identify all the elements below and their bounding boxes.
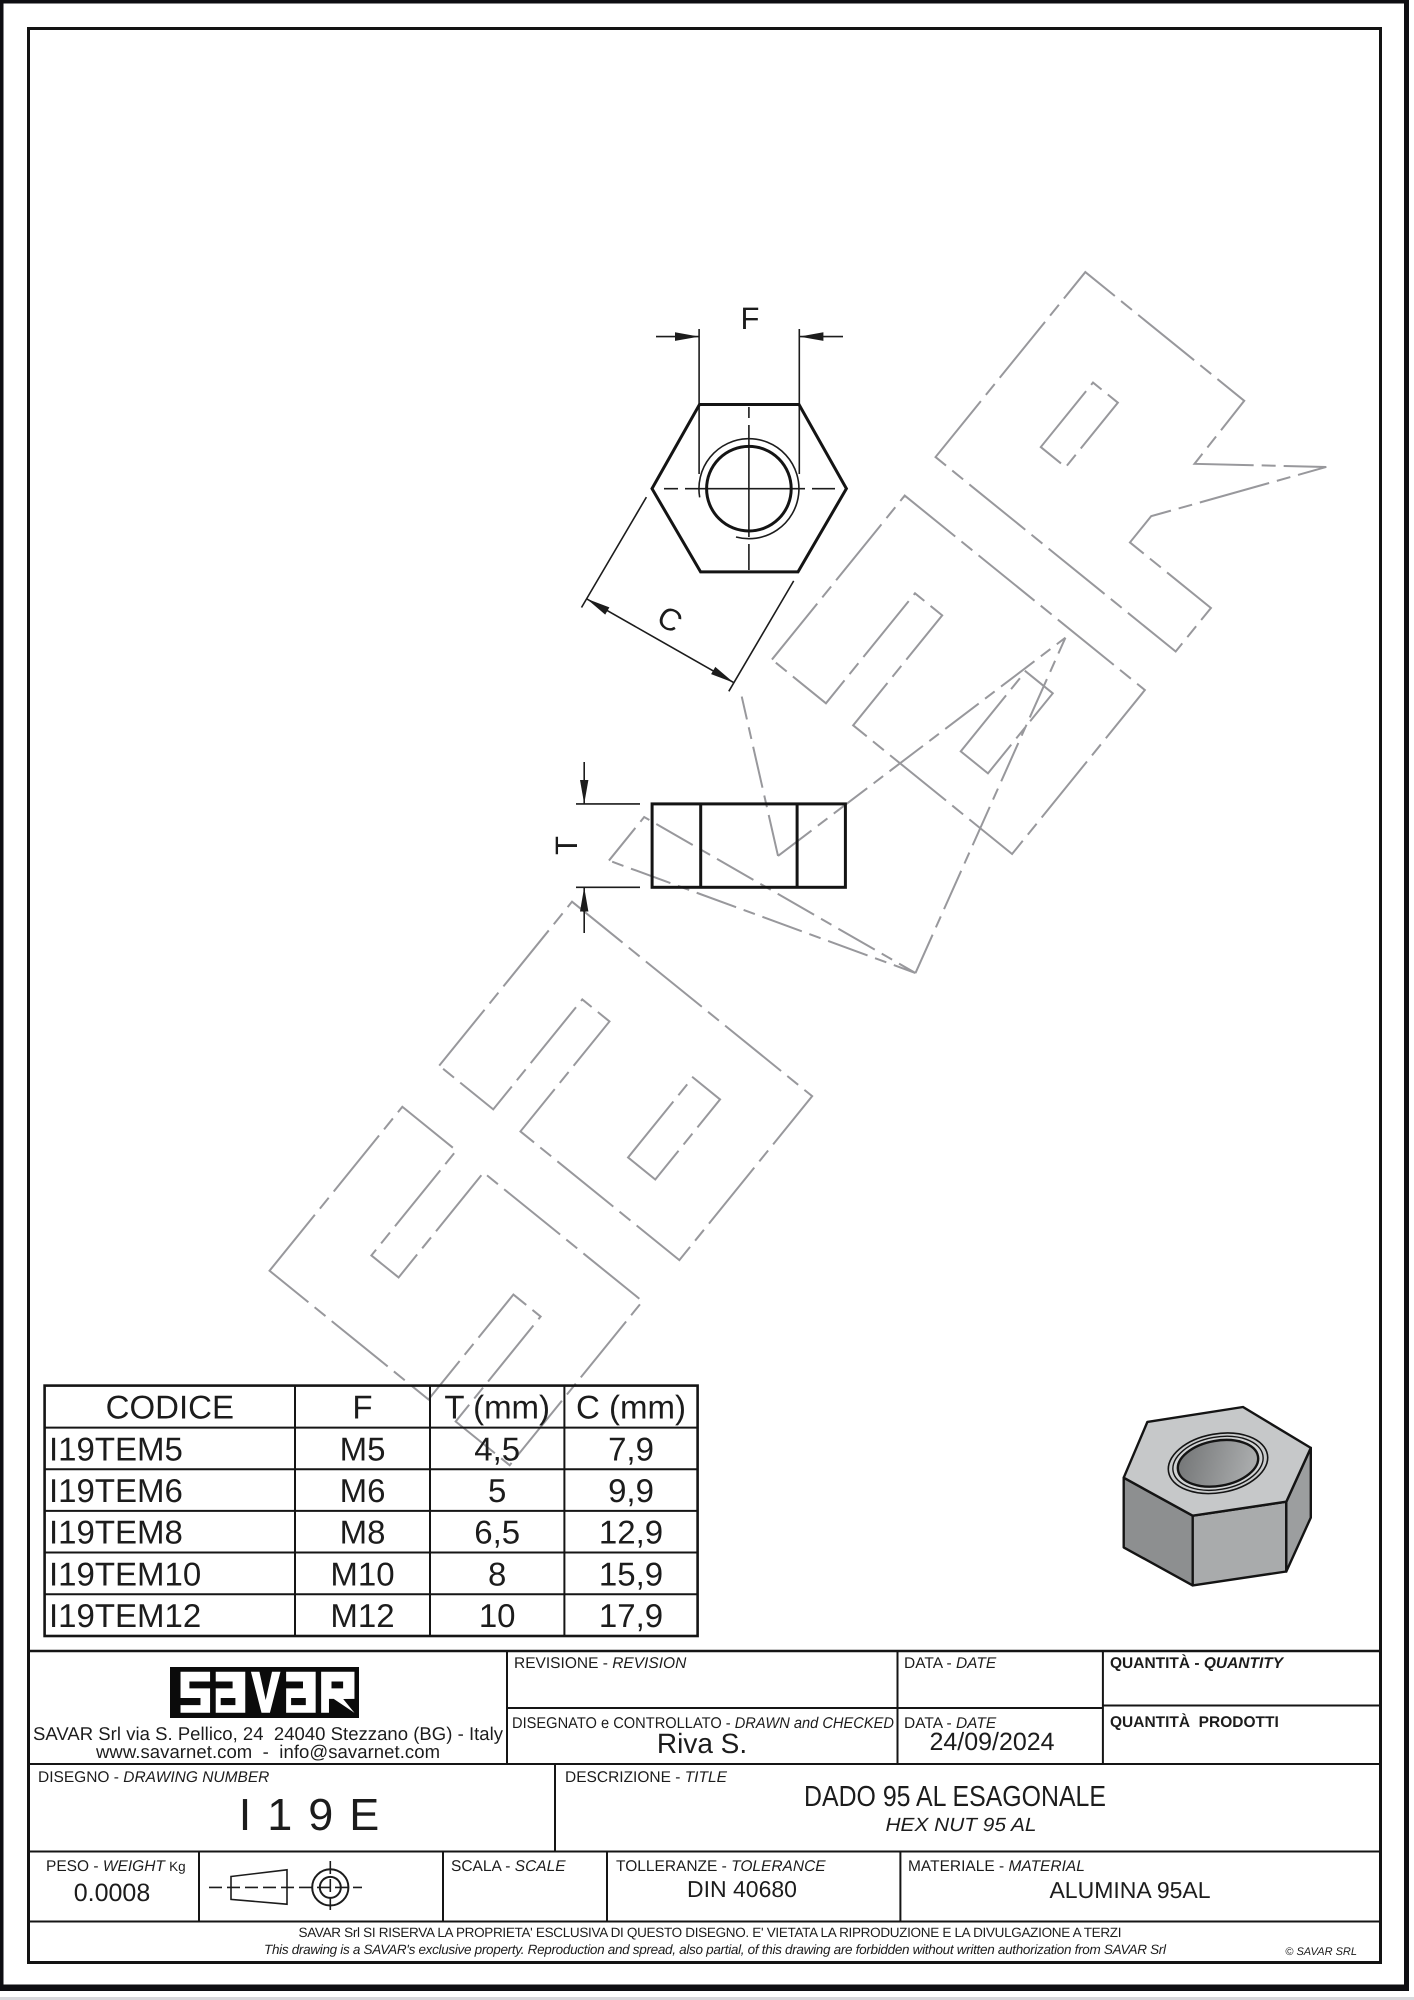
svg-text:M6: M6 xyxy=(340,1472,386,1509)
svg-text:15,9: 15,9 xyxy=(599,1555,663,1592)
svg-text:MATERIALE - MATERIAL: MATERIALE - MATERIAL xyxy=(908,1858,1085,1875)
svg-text:M10: M10 xyxy=(330,1555,394,1592)
svg-text:I19TEM6: I19TEM6 xyxy=(49,1472,183,1509)
svg-text:REVISIONE - REVISION: REVISIONE - REVISION xyxy=(514,1655,687,1672)
svg-text:I19TEM5: I19TEM5 xyxy=(49,1430,183,1467)
svg-text:9,9: 9,9 xyxy=(608,1472,654,1509)
svg-text:QUANTITÀ PRODOTTI: QUANTITÀ PRODOTTI xyxy=(1110,1713,1279,1731)
svg-text:8: 8 xyxy=(488,1555,506,1592)
svg-text:M5: M5 xyxy=(340,1430,386,1467)
svg-text:SAVAR Srl SI RISERVA LA PROPRI: SAVAR Srl SI RISERVA LA PROPRIETA' ESCLU… xyxy=(299,1925,1122,1940)
svg-text:C (mm): C (mm) xyxy=(576,1389,686,1426)
svg-text:I19TEM12: I19TEM12 xyxy=(49,1597,201,1634)
svg-text:TOLLERANZE - TOLERANCE: TOLLERANZE - TOLERANCE xyxy=(616,1858,826,1875)
svg-text:5: 5 xyxy=(488,1472,506,1509)
svg-text:17,9: 17,9 xyxy=(599,1597,663,1634)
svg-text:10: 10 xyxy=(479,1597,516,1634)
svg-text:I19TEM10: I19TEM10 xyxy=(49,1555,201,1592)
svg-text:DATA - DATE: DATA - DATE xyxy=(904,1655,997,1672)
svg-text:0.0008: 0.0008 xyxy=(74,1879,150,1907)
svg-text:DADO 95 AL ESAGONALE: DADO 95 AL ESAGONALE xyxy=(804,1781,1106,1813)
svg-text:SCALA - SCALE: SCALA - SCALE xyxy=(451,1858,566,1875)
svg-text:QUANTITÀ - QUANTITY: QUANTITÀ - QUANTITY xyxy=(1110,1654,1285,1672)
svg-text:F: F xyxy=(741,301,760,336)
svg-text:T (mm): T (mm) xyxy=(444,1389,550,1426)
svg-text:I19TEM8: I19TEM8 xyxy=(49,1514,183,1551)
svg-text:6,5: 6,5 xyxy=(474,1514,520,1551)
svg-text:12,9: 12,9 xyxy=(599,1514,663,1551)
svg-text:F: F xyxy=(352,1389,372,1426)
svg-text:CODICE: CODICE xyxy=(106,1389,234,1426)
svg-text:Riva S.: Riva S. xyxy=(657,1728,747,1759)
svg-text:I19E: I19E xyxy=(239,1789,396,1840)
svg-text:4,5: 4,5 xyxy=(474,1430,520,1467)
svg-text:www.savarnet.com - info@sava: www.savarnet.com - info@savarnet.com xyxy=(95,1741,440,1762)
svg-text:24/09/2024: 24/09/2024 xyxy=(929,1728,1054,1756)
svg-text:T: T xyxy=(549,836,584,855)
svg-text:PESO - WEIGHT Kg: PESO - WEIGHT Kg xyxy=(46,1858,186,1875)
svg-text:© SAVAR SRL: © SAVAR SRL xyxy=(1285,1946,1357,1958)
svg-text:M8: M8 xyxy=(340,1514,386,1551)
svg-text:This drawing is a SAVAR's excl: This drawing is a SAVAR's exclusive prop… xyxy=(264,1942,1167,1957)
svg-text:7,9: 7,9 xyxy=(608,1430,654,1467)
svg-text:ALUMINA 95AL: ALUMINA 95AL xyxy=(1049,1877,1210,1903)
svg-text:DIN 40680: DIN 40680 xyxy=(687,1876,797,1902)
svg-text:M12: M12 xyxy=(330,1597,394,1634)
svg-text:HEX NUT 95 AL: HEX NUT 95 AL xyxy=(886,1815,1037,1836)
svg-text:DISEGNO - DRAWING NUMBER: DISEGNO - DRAWING NUMBER xyxy=(38,1769,269,1786)
svg-text:DESCRIZIONE - TITLE: DESCRIZIONE - TITLE xyxy=(565,1769,728,1786)
